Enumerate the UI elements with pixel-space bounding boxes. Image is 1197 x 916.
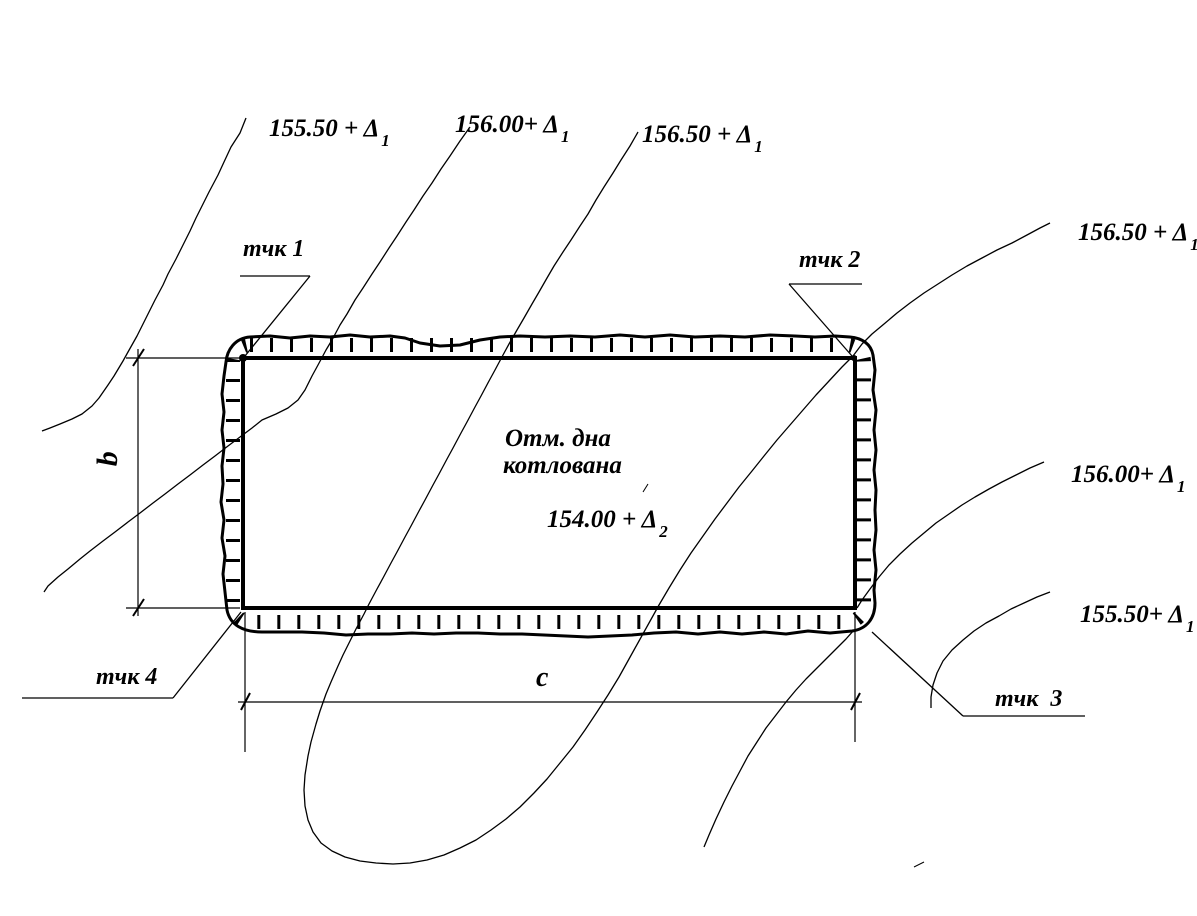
contour-label-top-2: 156.00+ Δ1 bbox=[430, 86, 570, 165]
contour-label-right-3-text: 155.50+ Δ bbox=[1080, 601, 1184, 628]
contour-label-top-2-sub: 1 bbox=[561, 127, 570, 146]
pit-note-line-2: котлована bbox=[503, 453, 622, 479]
contour-label-top-1-text: 155.50 + Δ bbox=[269, 115, 379, 142]
ground-contour-156-50-loop bbox=[304, 132, 1050, 864]
excavation-pit-plan-drawing: 155.50 + Δ1 156.00+ Δ1 156.50 + Δ1 156.5… bbox=[0, 0, 1197, 916]
contour-label-top-1-sub: 1 bbox=[381, 131, 390, 150]
contour-label-right-3-sub: 1 bbox=[1186, 617, 1195, 636]
ground-contour-156-00-right-continuation bbox=[704, 630, 854, 847]
dimension-label-b: b bbox=[92, 451, 124, 466]
contour-label-right-2-text: 156.00+ Δ bbox=[1071, 461, 1175, 488]
contour-label-top-3: 156.50 + Δ1 bbox=[617, 96, 763, 175]
contour-label-top-2-text: 156.00+ Δ bbox=[455, 111, 559, 138]
point-label-1: тчк 1 bbox=[243, 237, 304, 262]
contour-label-right-1: 156.50 + Δ1 bbox=[1053, 194, 1197, 273]
stray-mark-2 bbox=[914, 862, 924, 867]
contour-label-right-1-sub: 1 bbox=[1190, 235, 1197, 254]
contour-label-right-3: 155.50+ Δ1 bbox=[1055, 576, 1195, 655]
ground-contour-155-50-left bbox=[42, 118, 246, 431]
dimension-label-c: c bbox=[536, 663, 548, 692]
contour-label-right-2-sub: 1 bbox=[1177, 477, 1186, 496]
pit-note-line-1: Отм. дна bbox=[505, 426, 611, 452]
point-label-3: тчк 3 bbox=[995, 687, 1062, 712]
contour-label-top-3-sub: 1 bbox=[754, 137, 763, 156]
point-label-2: тчк 2 bbox=[799, 248, 860, 273]
contour-label-right-1-text: 156.50 + Δ bbox=[1078, 219, 1188, 246]
pit-note-elevation: 154.00 + Δ2 bbox=[522, 481, 668, 560]
contour-label-right-2: 156.00+ Δ1 bbox=[1046, 436, 1186, 515]
pit-note-elevation-sub: 2 bbox=[659, 522, 668, 541]
contour-label-top-1: 155.50 + Δ1 bbox=[244, 90, 390, 169]
pit-note-elevation-text: 154.00 + Δ bbox=[547, 506, 657, 533]
contour-label-top-3-text: 156.50 + Δ bbox=[642, 121, 752, 148]
ground-contour-156-00-right bbox=[857, 462, 1044, 608]
point-label-4: тчк 4 bbox=[96, 665, 157, 690]
